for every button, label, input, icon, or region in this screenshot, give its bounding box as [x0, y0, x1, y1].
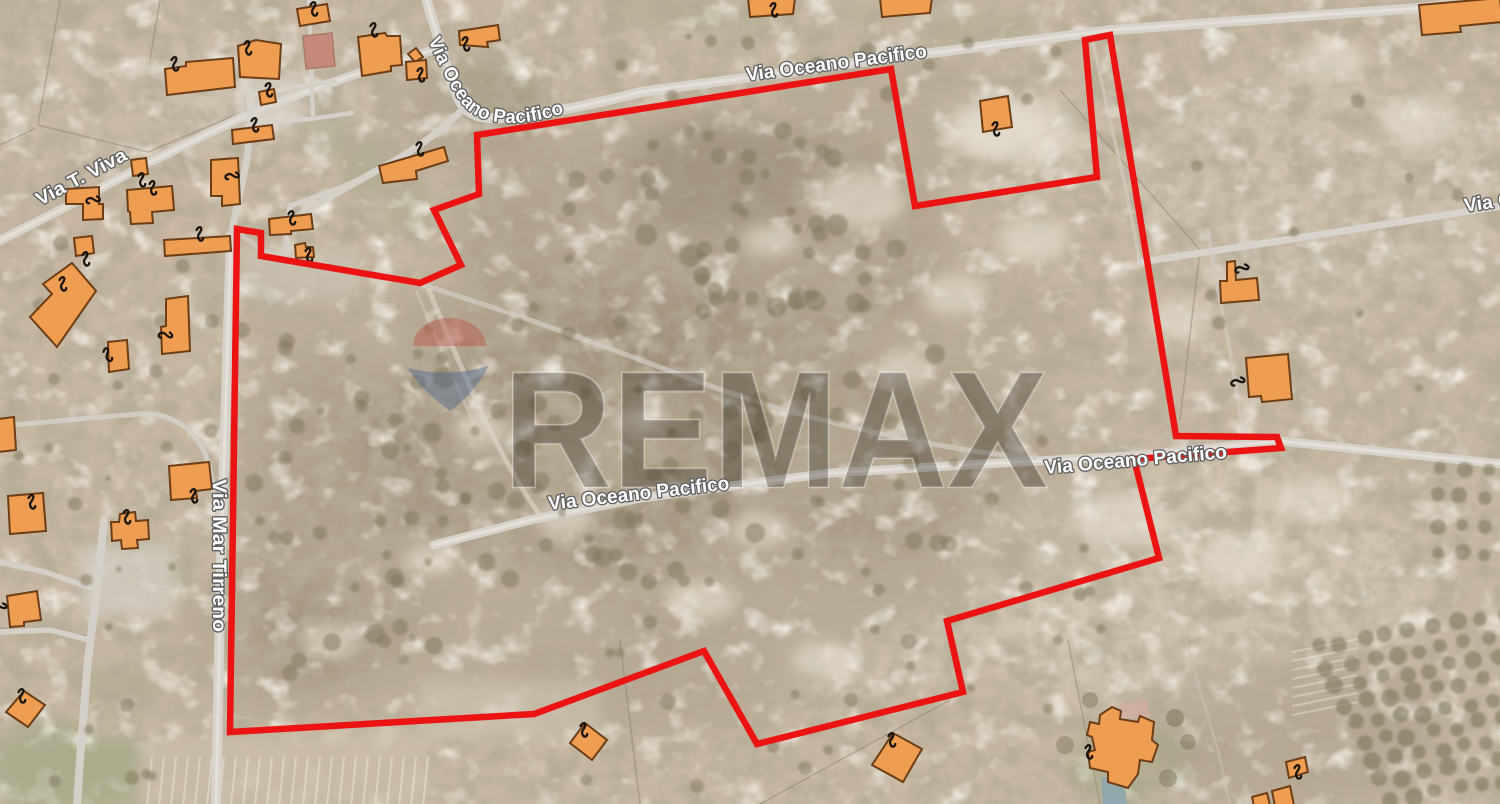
- svg-text:Via Mar Tirreno: Via Mar Tirreno: [208, 479, 229, 632]
